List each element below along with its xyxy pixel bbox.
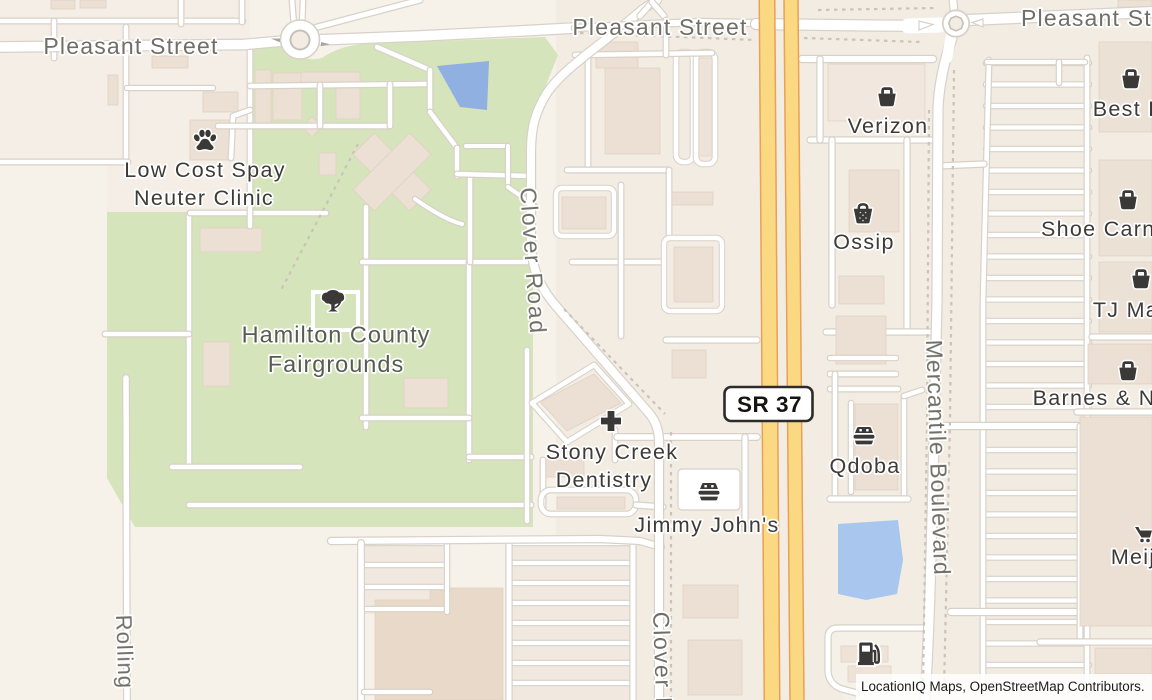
svg-text:Ossip: Ossip: [833, 230, 894, 254]
svg-text:Pleasant Street: Pleasant Street: [1021, 5, 1152, 31]
svg-text:Shoe Carnival: Shoe Carnival: [1041, 217, 1152, 241]
svg-text:Pleasant Street: Pleasant Street: [43, 33, 218, 59]
svg-text:Meijer: Meijer: [1111, 545, 1152, 569]
svg-text:Rolling: Rolling: [111, 614, 139, 689]
svg-text:Pleasant Street: Pleasant Street: [572, 14, 747, 40]
svg-text:LocationIQ Maps, OpenStreetMap: LocationIQ Maps, OpenStreetMap Contribut…: [861, 679, 1145, 694]
svg-text:Fairgrounds: Fairgrounds: [268, 351, 404, 377]
svg-text:Clover Road: Clover Road: [648, 611, 679, 700]
svg-text:Barnes & Noble: Barnes & Noble: [1033, 386, 1152, 410]
svg-text:Low Cost Spay: Low Cost Spay: [124, 158, 286, 182]
svg-text:Dentistry: Dentistry: [556, 468, 653, 492]
svg-text:Verizon: Verizon: [848, 114, 929, 138]
svg-text:Hamilton County: Hamilton County: [242, 322, 431, 348]
svg-text:Neuter Clinic: Neuter Clinic: [134, 186, 274, 210]
svg-text:Best Buy: Best Buy: [1093, 97, 1152, 121]
svg-text:Qdoba: Qdoba: [829, 454, 900, 478]
svg-text:TJ Maxx: TJ Maxx: [1093, 298, 1152, 322]
svg-text:SR 37: SR 37: [737, 392, 802, 417]
svg-text:Jimmy John's: Jimmy John's: [634, 513, 779, 537]
svg-text:Stony Creek: Stony Creek: [546, 440, 679, 464]
